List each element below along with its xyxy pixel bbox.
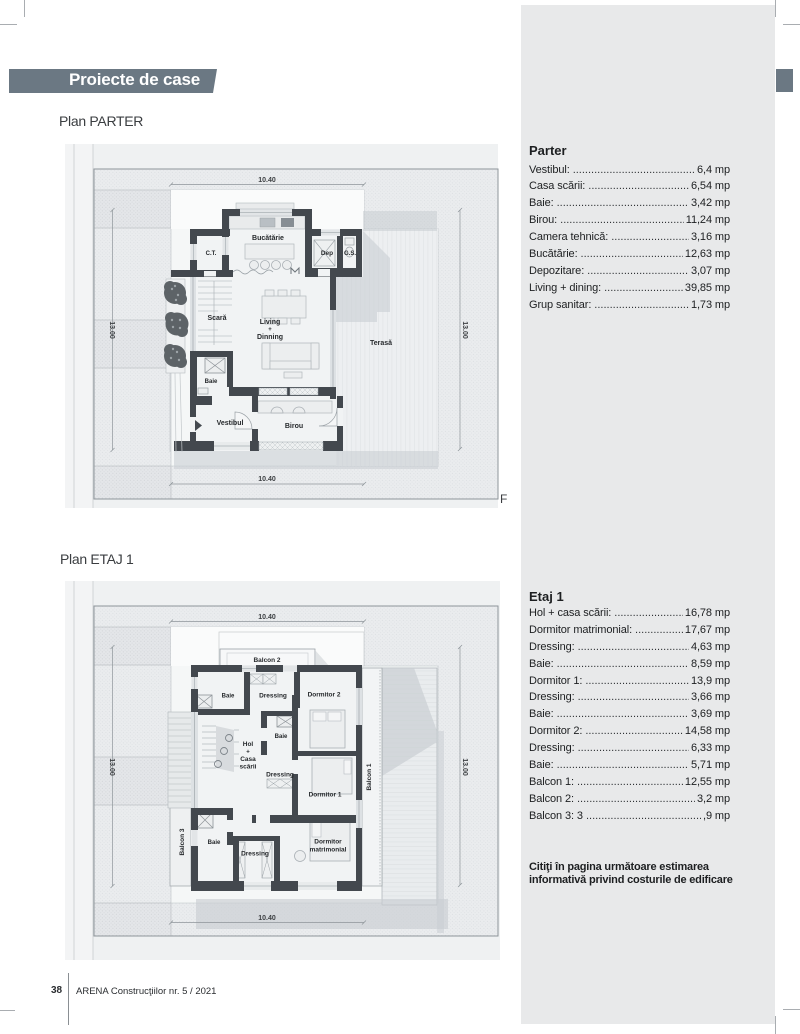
svg-text:Bucătărie: Bucătărie — [252, 235, 284, 242]
svg-text:Dormitor 2: Dormitor 2 — [308, 692, 341, 699]
svg-text:Baie: Baie — [205, 379, 218, 385]
svg-text:Dressing: Dressing — [241, 851, 269, 858]
svg-text:Baie: Baie — [222, 694, 235, 700]
svg-text:Dinning: Dinning — [257, 334, 283, 341]
svg-text:Balcon 3: Balcon 3 — [179, 828, 186, 855]
svg-text:10.40: 10.40 — [258, 915, 276, 922]
svg-text:10.40: 10.40 — [258, 476, 276, 483]
svg-text:Terasă: Terasă — [370, 340, 392, 347]
svg-text:Baie: Baie — [275, 734, 288, 740]
svg-text:10.40: 10.40 — [258, 177, 276, 184]
svg-text:+: + — [268, 327, 272, 333]
svg-text:Casa: Casa — [240, 756, 256, 763]
svg-text:Birou: Birou — [285, 423, 303, 430]
svg-text:Dormitor 1: Dormitor 1 — [309, 792, 342, 799]
svg-text:13.00: 13.00 — [108, 758, 115, 776]
svg-text:+: + — [246, 750, 250, 756]
svg-text:matrimonial: matrimonial — [310, 847, 347, 854]
svg-text:Living: Living — [260, 319, 281, 326]
svg-text:Scară: Scară — [207, 315, 226, 322]
svg-text:13.00: 13.00 — [461, 758, 468, 776]
svg-text:scării: scării — [240, 764, 257, 771]
svg-text:13.00: 13.00 — [461, 321, 468, 339]
svg-text:Dep: Dep — [321, 250, 333, 257]
svg-text:13.00: 13.00 — [108, 321, 115, 339]
svg-text:Dormitor: Dormitor — [314, 839, 342, 846]
svg-text:Hol: Hol — [243, 741, 254, 748]
svg-text:Balcon 2: Balcon 2 — [253, 657, 280, 664]
svg-text:10.40: 10.40 — [258, 614, 276, 621]
svg-text:Dressing: Dressing — [259, 693, 287, 700]
svg-text:C.T.: C.T. — [206, 251, 217, 257]
svg-text:Baie: Baie — [208, 840, 221, 846]
svg-text:Balcon 1: Balcon 1 — [366, 763, 373, 790]
svg-text:Vestibul: Vestibul — [217, 420, 244, 427]
svg-text:Dressing: Dressing — [266, 772, 294, 779]
svg-text:G.S.: G.S. — [344, 251, 356, 257]
